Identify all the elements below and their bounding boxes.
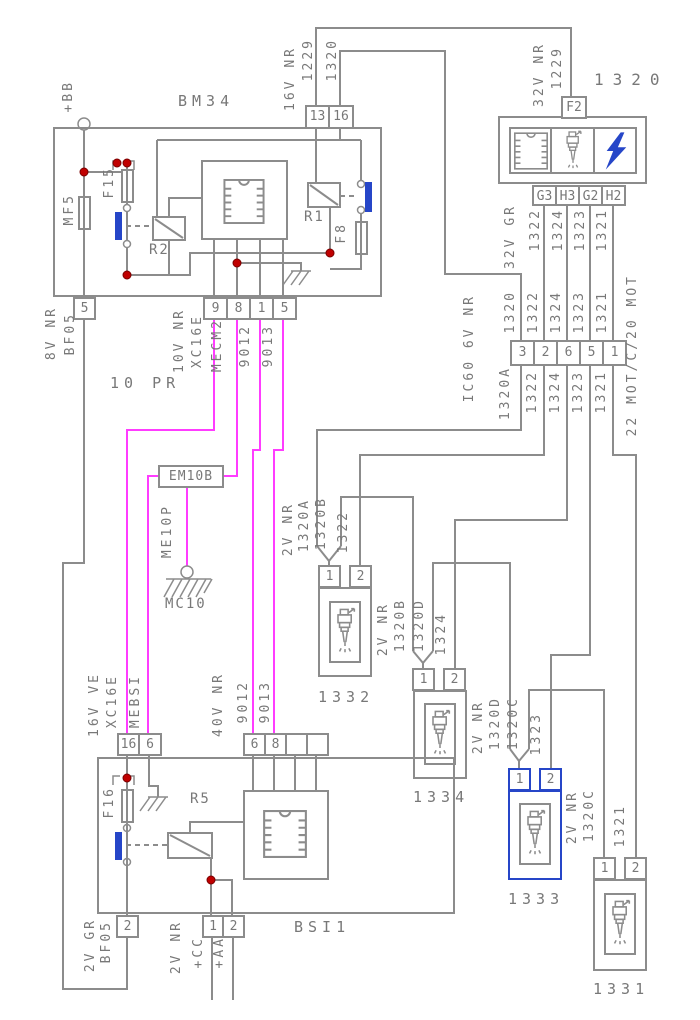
- relay-r2-label: R2: [149, 242, 170, 258]
- wire-label-9012: 9012: [239, 324, 253, 367]
- wire-gauge-2v-nr-b: 2V NR: [170, 920, 184, 974]
- wire-gauge-16v-nr: 16V NR: [284, 46, 298, 111]
- inj1331-wire-cmd: 1321: [614, 804, 628, 847]
- wire-label-1324a: 1324: [552, 208, 566, 251]
- inj1333-wire-in: 1320D: [489, 696, 503, 750]
- injector-1331-inner: [604, 893, 636, 955]
- relay-r1-label: R1: [304, 209, 325, 225]
- ground-mc10-label: MC10: [165, 596, 207, 612]
- wire-label-1229: 1229: [302, 38, 316, 81]
- module-pin-h2: H2: [601, 185, 626, 206]
- wire-label-9013: 9013: [262, 324, 276, 367]
- wire-label-9013-b: 9013: [259, 680, 273, 723]
- wire-gauge-8v-nr: 8V NR: [45, 306, 59, 360]
- wire-label-1322a: 1322: [529, 208, 543, 251]
- ic60-pin-2: 2: [533, 340, 558, 366]
- bsi-pin-1b: 1: [202, 915, 224, 938]
- inj1331-gauge: 2V NR: [566, 790, 580, 844]
- ic60-pin-1: 1: [602, 340, 627, 366]
- bsi-pin-6: 6: [138, 733, 162, 756]
- injector-1334-id: 1334: [413, 788, 469, 806]
- bsi-pin-blank2: [306, 733, 329, 756]
- ic60-below-1321: 1321: [595, 370, 609, 413]
- wire-gauge-10v-nr: 10V NR: [173, 308, 187, 373]
- ic60-above-1320: 1320: [504, 290, 518, 333]
- module-1320-icon-row: [509, 127, 637, 174]
- inj1332-gauge: 2V NR: [282, 502, 296, 556]
- ic60-below-1323: 1323: [572, 370, 586, 413]
- ic60-above-1322: 1322: [527, 290, 541, 333]
- battery-label: +BB: [62, 80, 76, 112]
- wire-label-9012-b: 9012: [237, 680, 251, 723]
- icon-divider: [550, 129, 552, 172]
- inj1334-pin-1: 1: [412, 668, 435, 691]
- inj1333-gauge: 2V NR: [472, 700, 486, 754]
- wire-label-bf05-b: BF05: [100, 920, 114, 963]
- fuse-f15-label: F15: [103, 166, 117, 198]
- inj1334-gauge: 2V NR: [377, 602, 391, 656]
- icon-divider: [593, 129, 595, 172]
- mc10-ground-icon: [164, 566, 212, 597]
- bm34-pin-5b: 5: [272, 297, 297, 320]
- ic60-above-1321: 1321: [596, 290, 610, 333]
- bm34-pin-9: 9: [203, 297, 228, 320]
- relay-r5-label: R5: [190, 791, 211, 807]
- ic60-pin-6: 6: [556, 340, 581, 366]
- wire-gauge-32v-gr: 32V GR: [504, 204, 518, 269]
- fuse-mf5-label: MF5: [63, 193, 77, 225]
- wire-gauge-2v-gr: 2V GR: [84, 918, 98, 972]
- bsi-title: BSI1: [294, 918, 350, 936]
- wire-label-xc16e-b: XC16E: [106, 674, 120, 728]
- wire-gauge-16v-ve: 16V VE: [88, 672, 102, 737]
- bsi-ecu-box: [243, 790, 329, 880]
- inj1334-pin-2: 2: [443, 668, 466, 691]
- ic60-pin-3: 3: [510, 340, 535, 366]
- wire-label-mecm2: MECM2: [211, 318, 225, 372]
- supply-aa-label: +AA: [213, 936, 227, 968]
- injector-1332-id: 1332: [318, 688, 374, 706]
- bsi-pin-2b: 2: [222, 915, 245, 938]
- bm34-pin-1: 1: [249, 297, 274, 320]
- harness-label: 22 MOT/C/20 MOT: [626, 274, 640, 436]
- inj1331-pin-2: 2: [624, 857, 647, 880]
- inj1334-wire-cmd: 1324: [435, 612, 449, 655]
- module-pin-g2: G2: [578, 185, 603, 206]
- wire-label-mebsi: MEBSI: [129, 674, 143, 728]
- inj1332-pin-1: 1: [318, 565, 341, 588]
- ic60-below-1320a: 1320A: [499, 366, 513, 420]
- inj1332-wire-out: 1320B: [315, 496, 329, 550]
- note-10pr: 10 PR: [110, 374, 180, 392]
- injector-1333-inner: [519, 803, 551, 865]
- bsi-pin-blank1: [285, 733, 308, 756]
- injector-1334-inner: [424, 703, 456, 765]
- inj1334-wire-in: 1320B: [394, 598, 408, 652]
- bsi-pin-16: 16: [117, 733, 140, 756]
- ic60-below-1322: 1322: [526, 370, 540, 413]
- wire-label-1320: 1320: [326, 38, 340, 81]
- inj1333-pin-2: 2: [539, 768, 562, 791]
- bm34-pin-8: 8: [226, 297, 251, 320]
- wire-label-1229b: 1229: [551, 46, 565, 89]
- inj1332-wire-in: 1320A: [298, 498, 312, 552]
- inj1331-pin-1: 1: [593, 857, 616, 880]
- fuse-f16-label: F16: [103, 786, 117, 818]
- injector-1333-id: 1333: [508, 890, 564, 908]
- bm34-title: BM34: [178, 92, 234, 110]
- em10b-splice: EM10B: [158, 465, 224, 488]
- connector-ic60-label: IC60 6V NR: [463, 294, 477, 402]
- wire-gauge-40v-nr: 40V NR: [212, 672, 226, 737]
- wire-label-bf05: BF05: [64, 312, 78, 355]
- bm34-pin-16: 16: [328, 105, 354, 129]
- wire-label-me10p: ME10P: [161, 504, 175, 558]
- module-code-1320: 1320: [594, 70, 669, 89]
- module-pin-h3: H3: [555, 185, 580, 206]
- inj1331-wire-in: 1320C: [583, 788, 597, 842]
- wire-gauge-32v-nr: 32V NR: [533, 42, 547, 107]
- ic60-pin-5: 5: [579, 340, 604, 366]
- inj1333-wire-out: 1320C: [507, 696, 521, 750]
- fuse-f8-label: F8: [335, 222, 349, 244]
- bm34-pin-13: 13: [305, 105, 330, 129]
- bsi-pin-8: 8: [264, 733, 287, 756]
- inj1333-pin-1: 1: [508, 768, 531, 791]
- bm34-ecu-box: [201, 160, 288, 240]
- module-fuse-f2: F2: [561, 96, 587, 119]
- inj1334-wire-out: 1320D: [413, 598, 427, 652]
- wire-label-1323a: 1323: [574, 208, 588, 251]
- supply-cc-label: +CC: [192, 936, 206, 968]
- bsi-pin-6b: 6: [243, 733, 266, 756]
- ic60-below-1324: 1324: [549, 370, 563, 413]
- injector-1332-inner: [329, 601, 361, 663]
- inj1333-wire-cmd: 1323: [530, 712, 544, 755]
- module-pin-g3: G3: [532, 185, 557, 206]
- wiring-diagram: EM10B 13 16 5 9 8 1 5 F2 G3 H3 G2 H2 3 2…: [0, 0, 700, 1020]
- bsi-pin-2: 2: [116, 915, 139, 938]
- wire-label-xc16e: XC16E: [191, 314, 205, 368]
- injector-1331-id: 1331: [593, 980, 649, 998]
- wire-label-1321a: 1321: [596, 208, 610, 251]
- ic60-above-1324: 1324: [550, 290, 564, 333]
- inj1332-wire-cmd: 1322: [337, 510, 351, 553]
- inj1332-pin-2: 2: [349, 565, 372, 588]
- ic60-above-1323: 1323: [573, 290, 587, 333]
